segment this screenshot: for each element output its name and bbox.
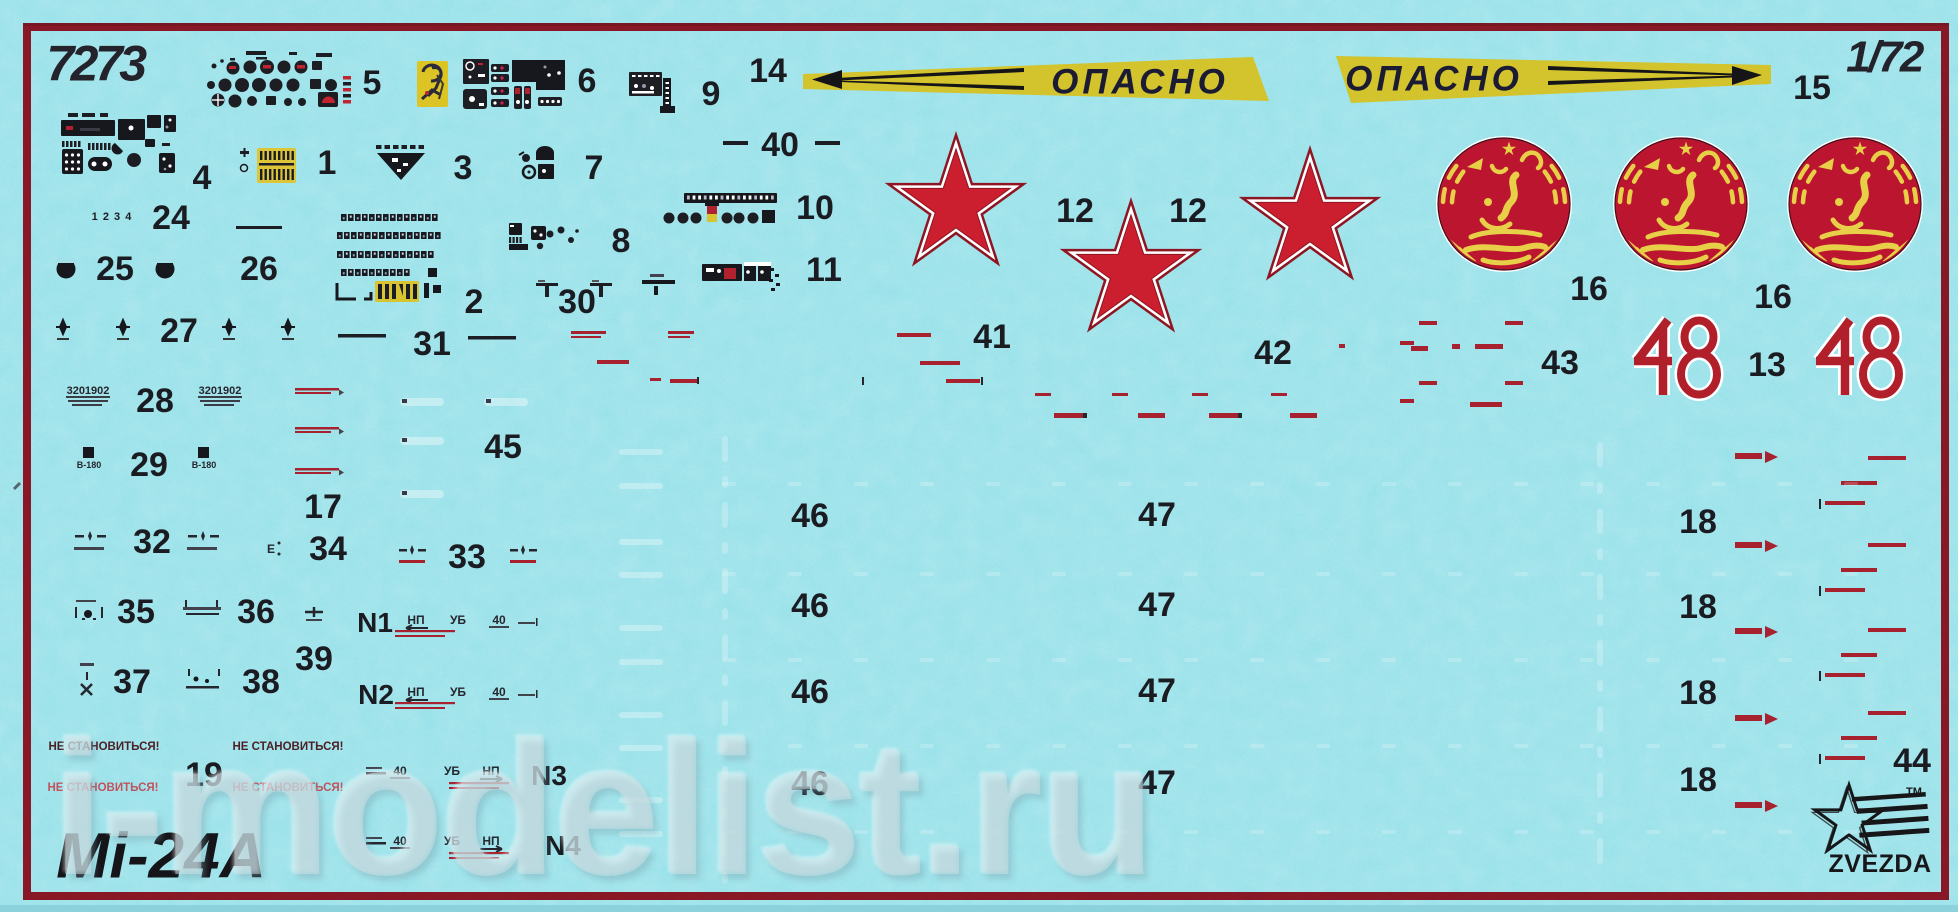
- svg-text:18: 18: [1679, 674, 1717, 712]
- svg-text:8: 8: [612, 222, 631, 260]
- svg-text:35: 35: [117, 593, 155, 631]
- svg-text:16: 16: [1754, 278, 1792, 316]
- svg-text:46: 46: [791, 587, 829, 625]
- svg-text:9: 9: [702, 75, 721, 113]
- svg-text:10: 10: [796, 189, 834, 227]
- svg-text:30: 30: [558, 283, 596, 321]
- svg-text:44: 44: [1893, 742, 1931, 780]
- svg-text:27: 27: [160, 312, 198, 350]
- svg-text:4: 4: [193, 159, 212, 197]
- svg-text:13: 13: [1748, 346, 1786, 384]
- svg-text:38: 38: [242, 663, 280, 701]
- svg-text:29: 29: [130, 446, 168, 484]
- svg-text:ZVEZDA: ZVEZDA: [1829, 850, 1932, 878]
- svg-text:32: 32: [133, 523, 171, 561]
- svg-text:42: 42: [1254, 334, 1292, 372]
- svg-text:39: 39: [295, 640, 333, 678]
- svg-text:16: 16: [1570, 270, 1608, 308]
- svg-text:40: 40: [492, 613, 506, 627]
- svg-text:В-180: В-180: [77, 460, 102, 470]
- svg-text:34: 34: [309, 530, 347, 568]
- svg-text:7: 7: [585, 149, 604, 187]
- svg-text:12: 12: [1169, 192, 1207, 230]
- svg-text:11: 11: [806, 251, 842, 289]
- svg-text:17: 17: [304, 488, 342, 526]
- svg-text:25: 25: [96, 250, 134, 288]
- svg-text:24: 24: [152, 199, 190, 237]
- svg-text:37: 37: [113, 663, 151, 701]
- svg-text:3201902: 3201902: [67, 385, 110, 397]
- svg-text:12: 12: [1056, 192, 1094, 230]
- svg-text:43: 43: [1541, 344, 1579, 382]
- svg-text:ОПАСНО: ОПАСНО: [1051, 62, 1229, 101]
- svg-text:3201902: 3201902: [199, 385, 242, 397]
- svg-text:3: 3: [454, 149, 473, 187]
- svg-text:5: 5: [363, 64, 382, 102]
- svg-text:28: 28: [136, 382, 174, 420]
- svg-text:26: 26: [240, 250, 278, 288]
- svg-text:40: 40: [492, 685, 506, 699]
- svg-text:В-180: В-180: [192, 460, 217, 470]
- svg-text:N1: N1: [357, 607, 393, 638]
- svg-text:Е: Е: [267, 542, 275, 556]
- svg-text:1/72: 1/72: [1846, 32, 1925, 81]
- svg-text:15: 15: [1793, 69, 1831, 107]
- svg-text:УБ: УБ: [450, 685, 466, 699]
- svg-text:45: 45: [484, 428, 522, 466]
- svg-text:1 2 3 4: 1 2 3 4: [92, 211, 133, 223]
- svg-text:40: 40: [761, 126, 799, 164]
- svg-text:УБ: УБ: [450, 613, 466, 627]
- svg-text:6: 6: [578, 62, 597, 100]
- svg-text:ОПАСНО: ОПАСНО: [1345, 59, 1523, 98]
- svg-text:41: 41: [973, 318, 1011, 356]
- svg-text:TM: TM: [1906, 786, 1922, 798]
- svg-text:18: 18: [1679, 588, 1717, 626]
- svg-text:46: 46: [791, 497, 829, 535]
- svg-text:47: 47: [1138, 586, 1176, 624]
- svg-text:36: 36: [237, 593, 275, 631]
- svg-text:33: 33: [448, 538, 486, 576]
- svg-text:18: 18: [1679, 503, 1717, 541]
- svg-text:31: 31: [413, 325, 451, 363]
- svg-text:47: 47: [1138, 496, 1176, 534]
- svg-text:2: 2: [465, 283, 484, 321]
- svg-text:18: 18: [1679, 761, 1717, 799]
- svg-text:7273: 7273: [46, 36, 147, 92]
- svg-text:14: 14: [749, 52, 787, 90]
- svg-text:1: 1: [318, 144, 337, 182]
